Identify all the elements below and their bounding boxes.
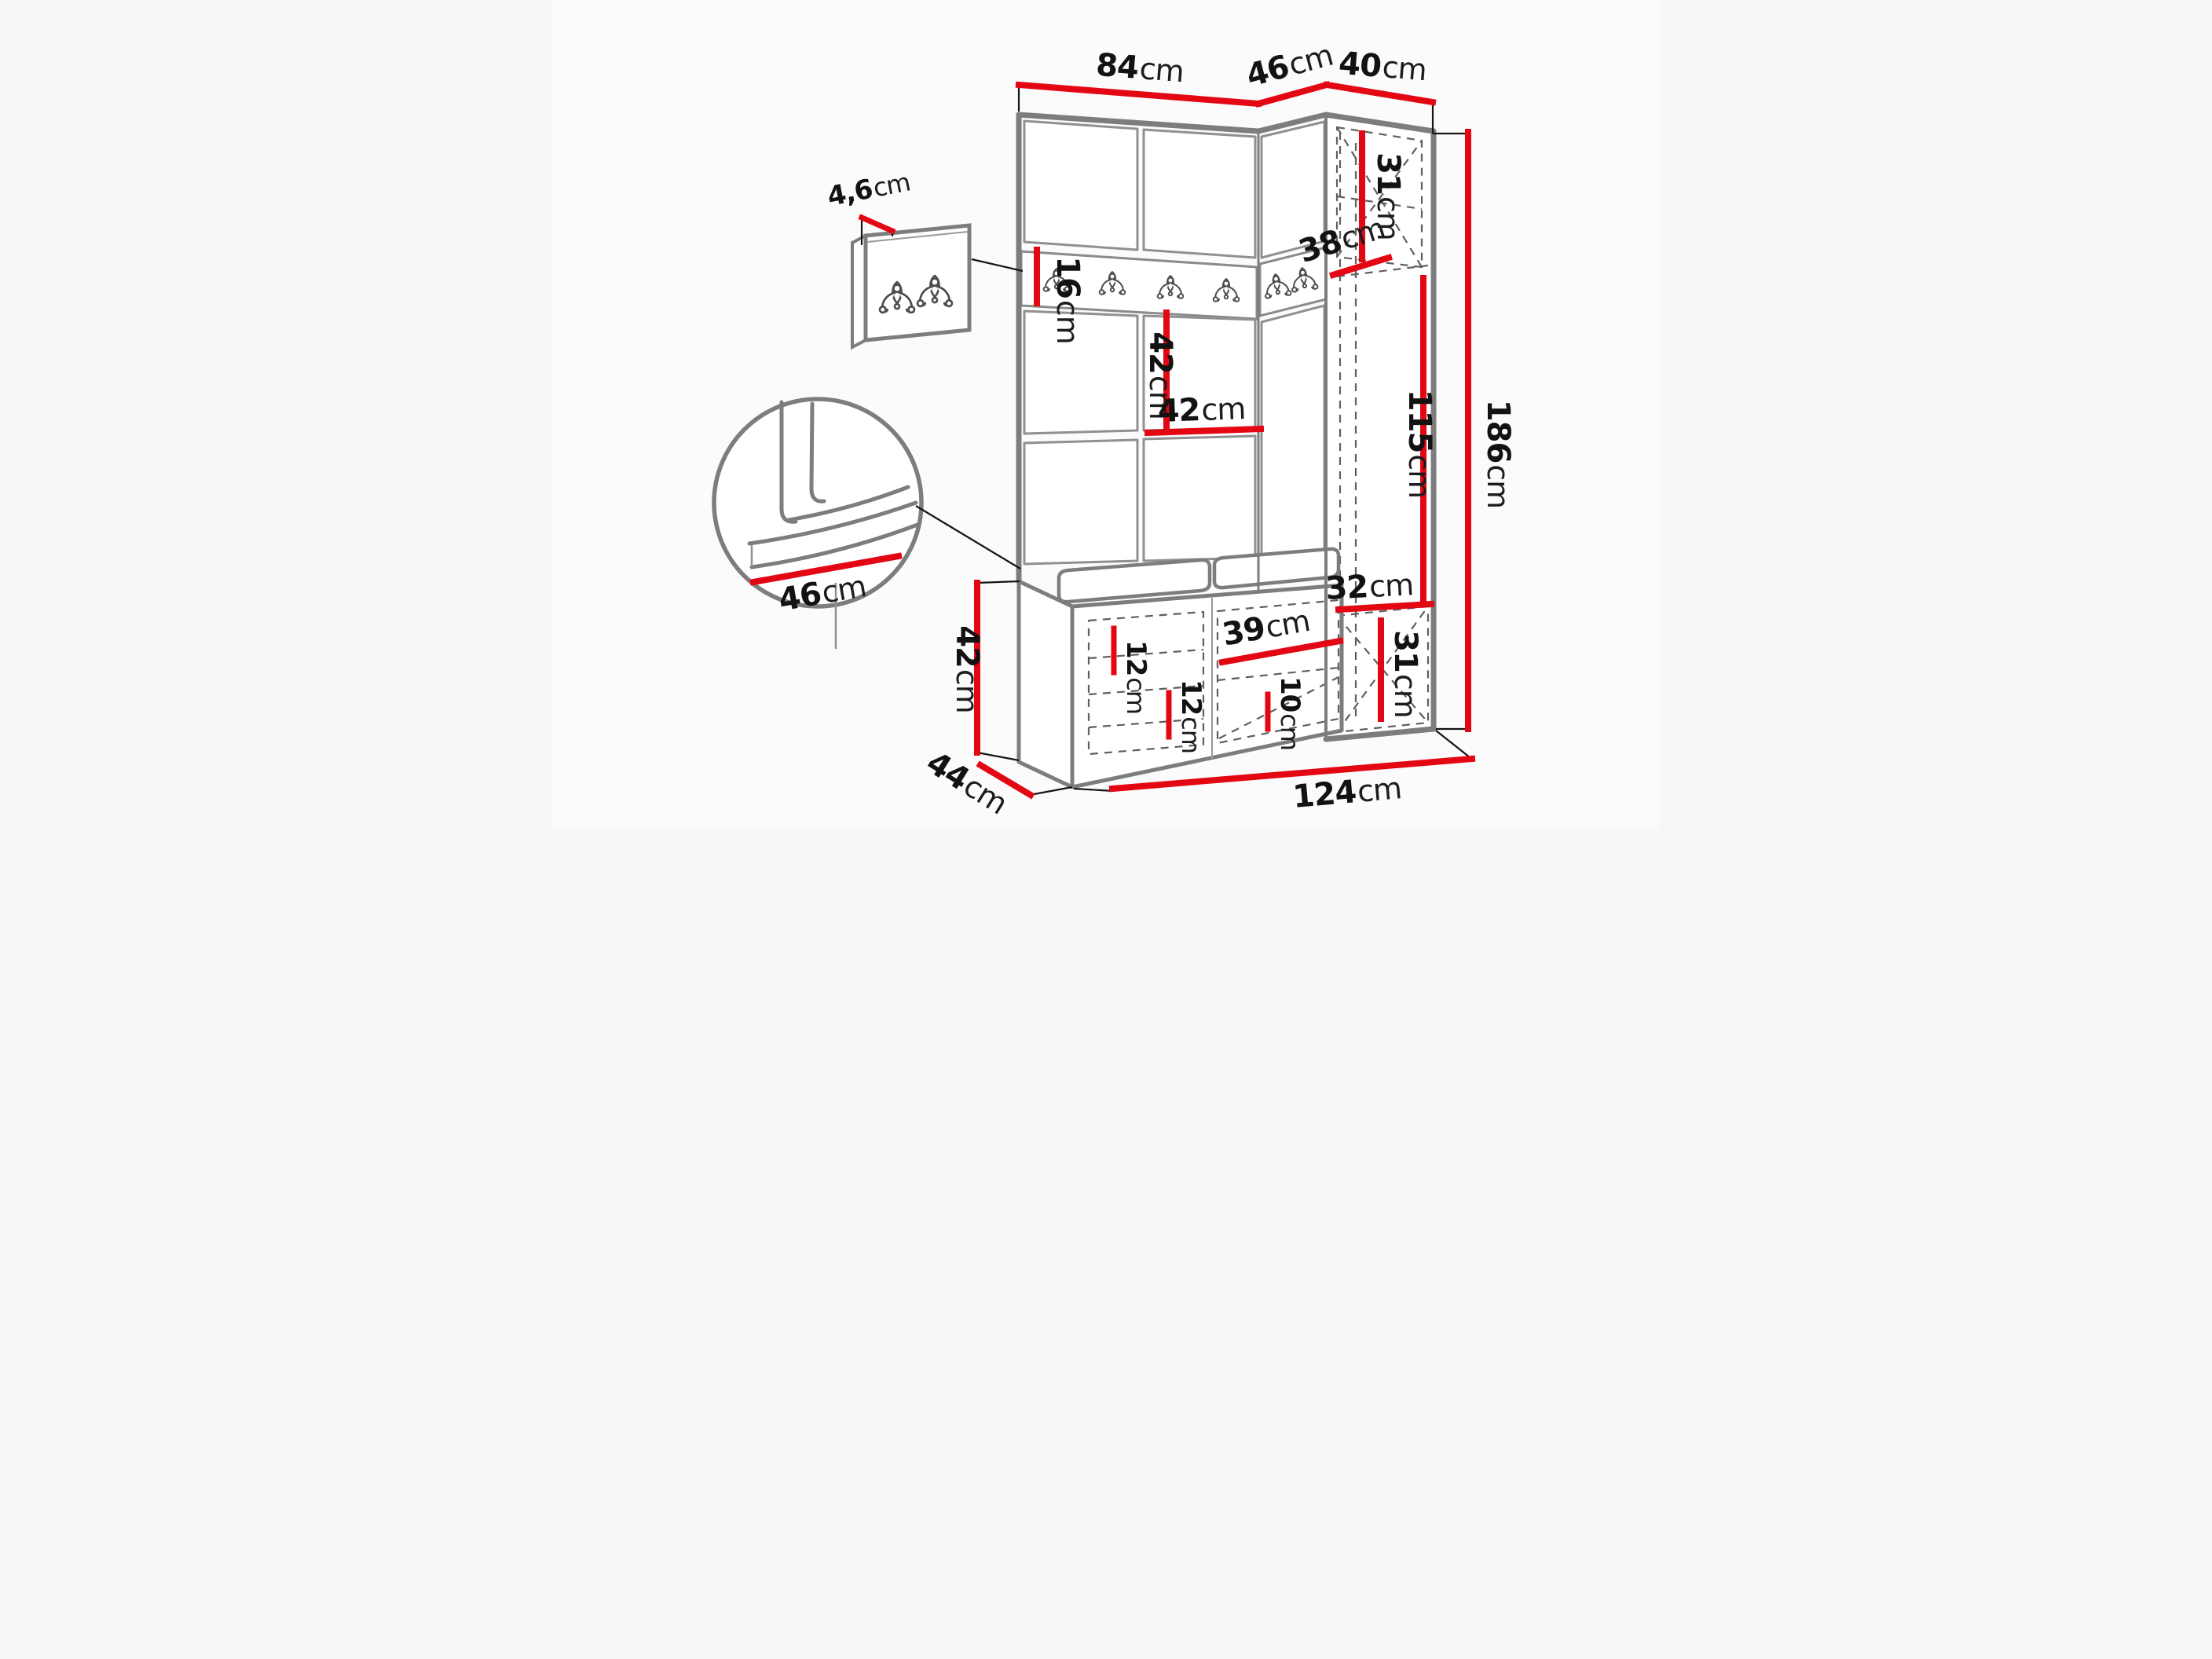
- dim-label-186cm: 186cm: [1480, 400, 1516, 508]
- dim-label-42cm-horizontal: 42cm: [1157, 390, 1246, 430]
- panel: [1024, 440, 1137, 564]
- dim-label-12cm-upper: 12cm: [1120, 640, 1152, 714]
- panel: [1024, 121, 1137, 250]
- tick: [977, 581, 1020, 583]
- dim-label-12cm-lower: 12cm: [1175, 679, 1207, 753]
- dim-label-124cm: 124cm: [1291, 770, 1403, 815]
- dim-label-84cm: 84cm: [1095, 47, 1185, 90]
- dim-label-40cm: 40cm: [1338, 46, 1428, 89]
- detail-panel-face: [866, 225, 969, 340]
- dim-line-42-horizontal: [1148, 429, 1261, 433]
- dim-label-42cm-bench: 42cm: [949, 625, 985, 713]
- dim-label-4-6cm: 4,6cm: [825, 166, 913, 212]
- dim-line-84: [1019, 85, 1258, 104]
- panel: [1144, 130, 1255, 258]
- dim-label-16cm: 16cm: [1049, 256, 1086, 344]
- furniture-dimension-diagram: 84cm 46cm 40cm 4,6cm 16cm 31cm 38cm 42cm…: [553, 0, 1659, 829]
- tick: [1030, 787, 1072, 795]
- dim-label-10cm: 10cm: [1274, 676, 1306, 750]
- floor-edge: [1436, 731, 1474, 760]
- bench-side-face: [1019, 581, 1072, 787]
- dim-label-115cm: 115cm: [1401, 390, 1437, 498]
- wall-panel-detail: [852, 225, 1023, 347]
- dim-line-40: [1327, 85, 1433, 102]
- panel: [1144, 436, 1255, 561]
- dim-label-32cm: 32cm: [1324, 566, 1414, 607]
- dim-label-31cm-bottom: 31cm: [1387, 630, 1423, 718]
- tick: [977, 753, 1019, 760]
- circle-pointer-line: [916, 506, 1020, 569]
- detail-pointer-line: [972, 259, 1023, 271]
- dim-line-4-6: [862, 218, 892, 231]
- diagram-canvas: 84cm 46cm 40cm 4,6cm 16cm 31cm 38cm 42cm…: [553, 0, 1659, 829]
- detail-panel-side: [852, 236, 866, 347]
- floor-edge: [1074, 789, 1114, 791]
- corner-panel: [1262, 306, 1324, 562]
